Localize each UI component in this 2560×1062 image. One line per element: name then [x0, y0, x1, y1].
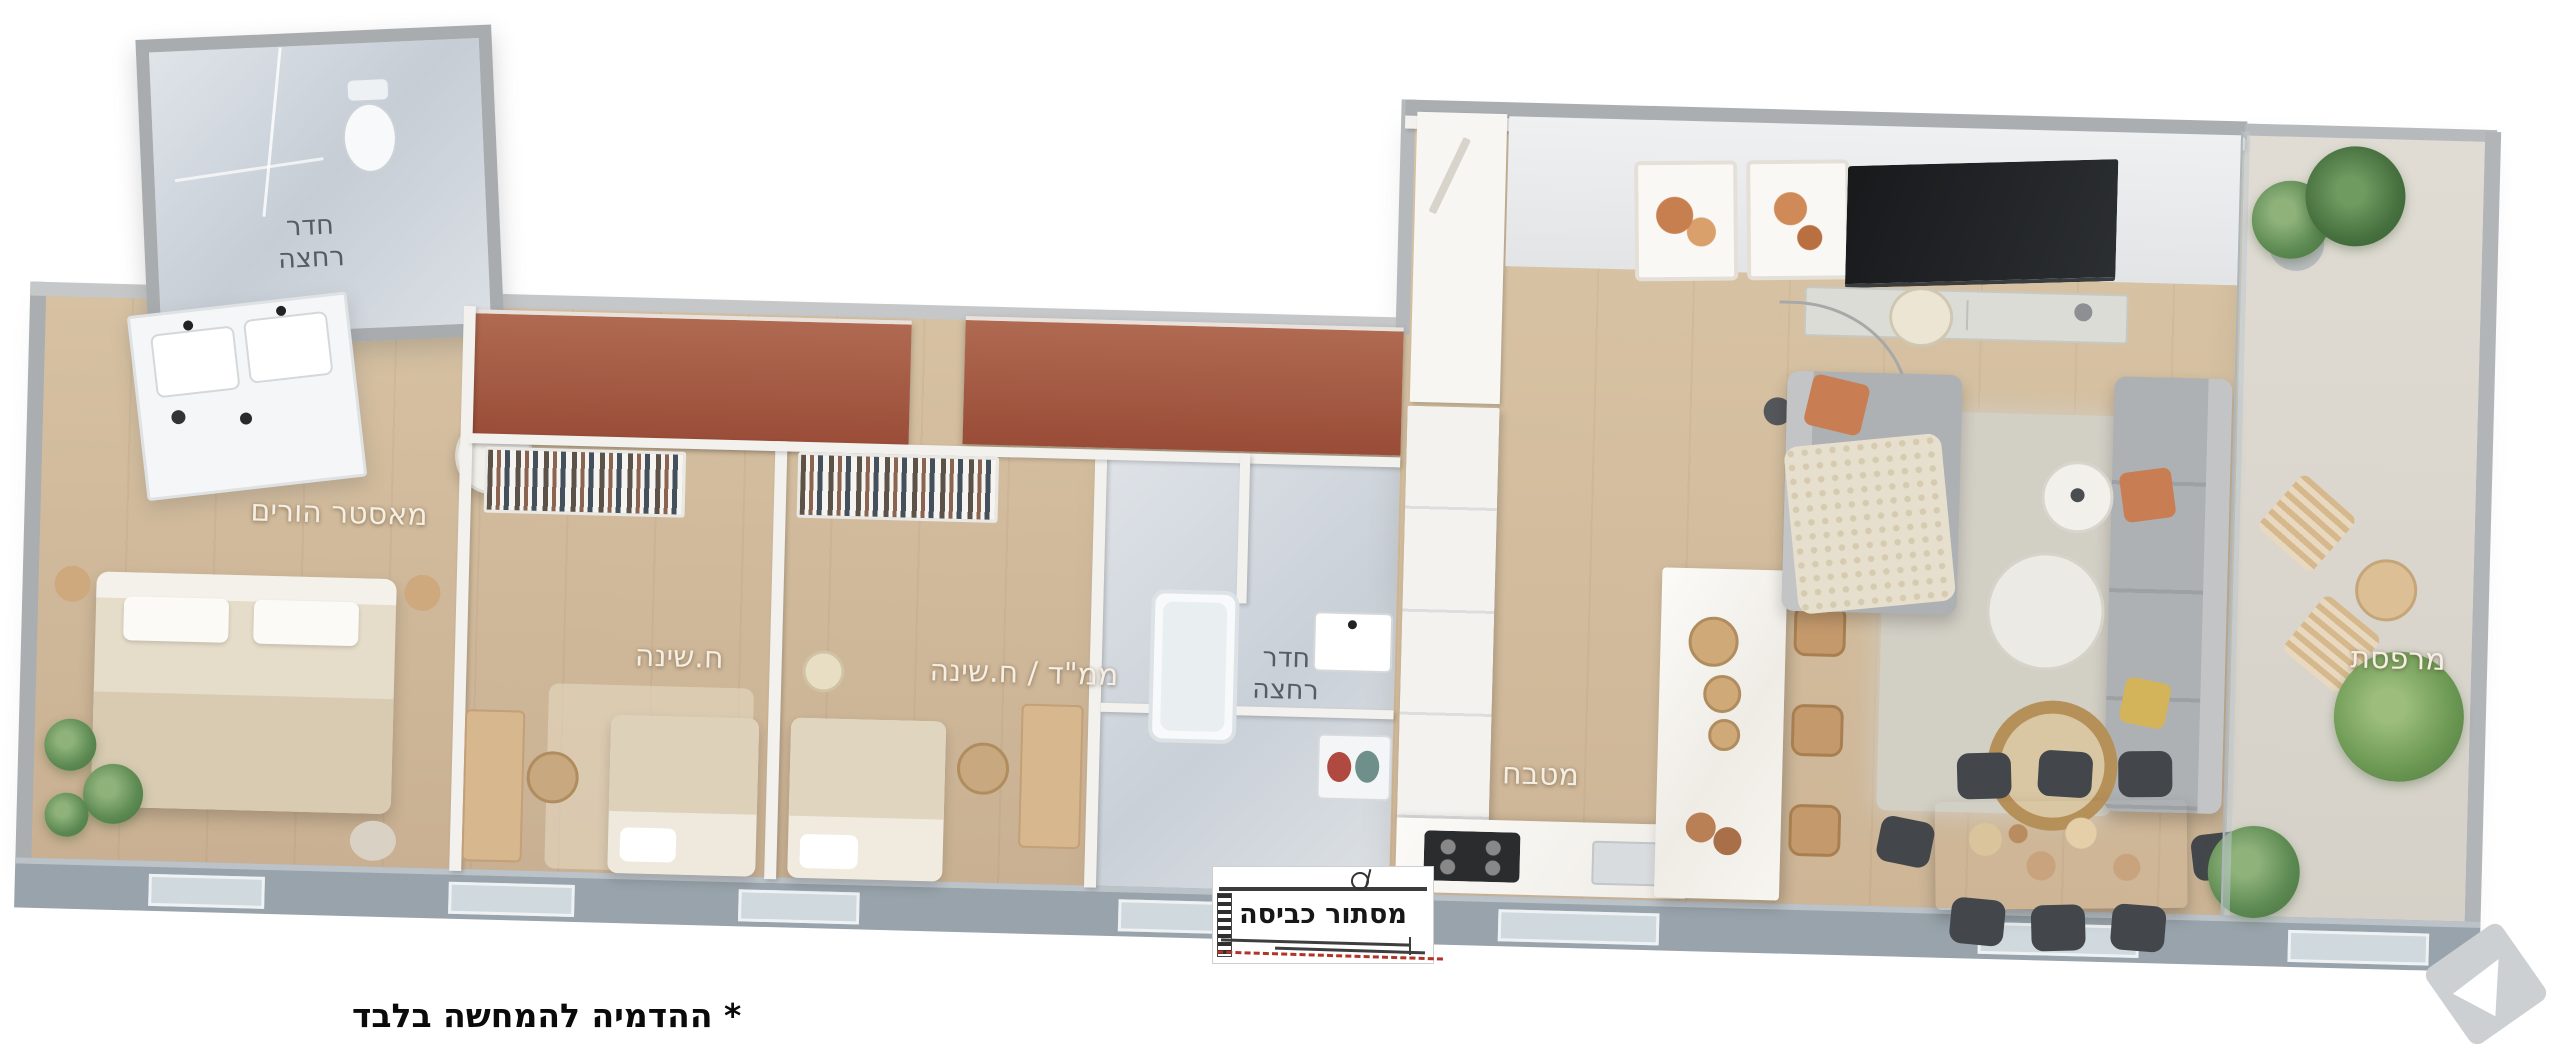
dining-chair — [2118, 751, 2172, 797]
cad-tick — [1409, 937, 1411, 955]
washing-machine — [1316, 733, 1392, 801]
bathtub-basin — [1160, 601, 1227, 732]
window — [738, 889, 860, 924]
pillow — [123, 596, 229, 643]
terracotta-wall — [468, 309, 911, 450]
desk — [1018, 704, 1084, 850]
shower-glass — [175, 157, 324, 182]
bar-stool — [1791, 704, 1844, 757]
cup — [2070, 488, 2084, 502]
cad-line — [1219, 887, 1427, 891]
laundry-item-red — [1327, 752, 1352, 783]
bathroom-label-line1: חדר — [1253, 642, 1320, 676]
toilet-tank — [346, 78, 389, 102]
dining-table — [1935, 800, 2188, 910]
blanket — [609, 715, 759, 815]
dining-chair — [2037, 749, 2094, 798]
bookshelf — [797, 452, 1000, 523]
kitchen-tall-cabinets — [1397, 406, 1500, 823]
wall-art-frame — [1746, 159, 1850, 280]
terracotta-wall — [963, 316, 1404, 455]
vanity-accessory — [171, 409, 186, 424]
window — [448, 882, 575, 917]
kitchen-label: מטבח — [1502, 756, 1580, 793]
vanity-counter — [127, 291, 368, 501]
vanity-accessory — [239, 412, 252, 425]
floorplan-canvas: חדר רחצה מאסטר הורים ח.שינה — [0, 0, 2560, 1062]
toilet — [341, 102, 398, 174]
bowl — [1685, 812, 1716, 843]
knit-throw — [1783, 433, 1956, 615]
cad-step-line — [1221, 938, 1411, 946]
desk — [461, 709, 525, 863]
dining-chair — [1957, 752, 2012, 799]
pendant-light — [1708, 719, 1741, 752]
kitchen-sink — [1591, 841, 1660, 887]
kitchen-counter — [1395, 818, 1687, 900]
sink — [243, 311, 334, 384]
pillow-orange — [2119, 467, 2177, 523]
laundry-item-teal — [1355, 750, 1380, 783]
kitchen-island — [1654, 567, 1788, 900]
master-bathroom-label-line1: חדר — [276, 209, 344, 244]
master-bathroom-label: חדר רחצה — [276, 209, 345, 277]
sofa-long — [2103, 376, 2232, 814]
window — [148, 874, 265, 909]
bar-stool — [1788, 804, 1841, 857]
dining-chair — [2031, 904, 2086, 951]
cad-hatch — [1217, 893, 1232, 957]
window — [1498, 909, 1660, 945]
pillow — [799, 834, 858, 870]
logo-arrow-icon — [2433, 931, 2540, 1038]
bed — [787, 718, 946, 882]
blanket — [789, 718, 947, 820]
dining-chair — [1948, 896, 2006, 947]
safe-room-label: ממ"ד / ח.שינה — [929, 653, 1119, 693]
master-bathroom-label-line2: רחצה — [277, 242, 345, 277]
console-decor — [2074, 303, 2092, 321]
pillow — [619, 827, 676, 862]
bathtub — [1148, 589, 1240, 744]
bathroom-label-line2: רחצה — [1252, 674, 1319, 708]
bathroom-label: חדר רחצה — [1252, 642, 1320, 709]
console-divider — [1966, 300, 1969, 330]
disclaimer-text: * ההדמיה להמחשה בלבד — [352, 996, 741, 1035]
master-bedroom-label: מאסטר הורים — [250, 493, 428, 533]
bathroom-sink — [1313, 611, 1394, 673]
pendant-light — [1703, 674, 1742, 713]
window — [2287, 930, 2429, 966]
bowl — [1713, 827, 1742, 856]
bed — [607, 715, 759, 877]
laundry-label: מסתור כביסה — [1233, 899, 1413, 930]
tv — [1845, 159, 2118, 288]
shower-glass — [262, 47, 281, 217]
bedroom-label: ח.שינה — [634, 639, 724, 676]
bookshelf — [484, 447, 687, 518]
apartment-plan: חדר רחצה מאסטר הורים ח.שינה — [28, 70, 2499, 974]
pillow-yellow — [2118, 676, 2172, 730]
pendant-light — [1688, 616, 1739, 667]
wall-art-frame — [1634, 160, 1738, 281]
faucet — [1348, 620, 1357, 629]
cooktop — [1423, 830, 1520, 882]
pillow — [253, 600, 359, 647]
sink — [150, 325, 241, 398]
dining-chair — [2110, 903, 2167, 953]
laundry-concealment-box: מסתור כביסה — [1212, 866, 1434, 964]
balcony-label: מרפסת — [2350, 640, 2446, 677]
